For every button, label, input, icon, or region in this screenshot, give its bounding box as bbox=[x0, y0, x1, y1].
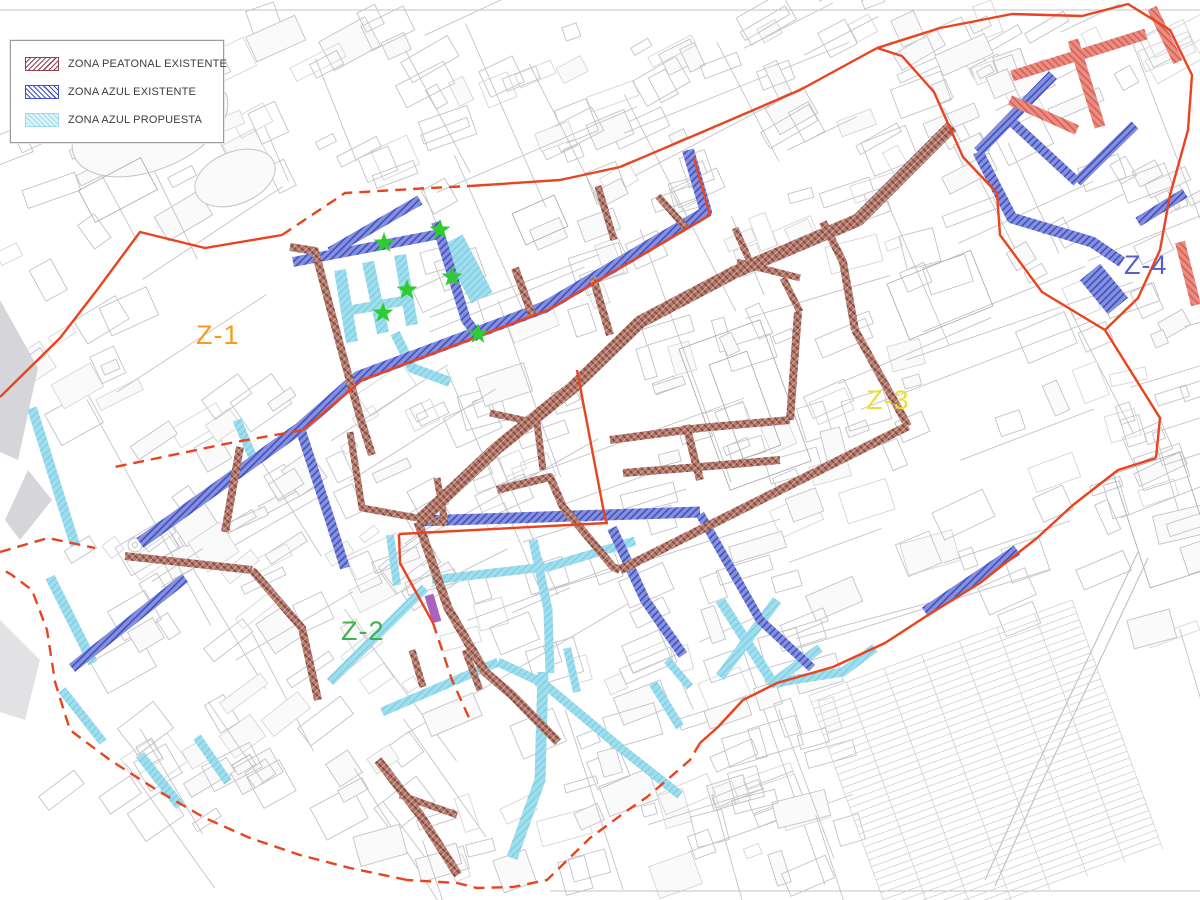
legend-label-blue-existing: ZONA AZUL EXISTENTE bbox=[68, 86, 196, 98]
blue-zone-swatch-icon bbox=[25, 85, 59, 99]
pedestrian-zone-swatch-icon bbox=[25, 57, 59, 71]
urban-zoning-plan: Z-1Z-2Z-3Z-4 ZONA PEATONAL EXISTENTE ZON… bbox=[0, 0, 1200, 900]
legend-item-pedestrian-existing: ZONA PEATONAL EXISTENTE bbox=[25, 50, 213, 78]
proposed-blue-zone-swatch-icon bbox=[25, 113, 59, 127]
zone-label-z-3: Z-3 bbox=[866, 387, 910, 414]
zone-label-z-2: Z-2 bbox=[341, 618, 385, 645]
legend-label-blue-proposed: ZONA AZUL PROPUESTA bbox=[68, 114, 202, 126]
legend: ZONA PEATONAL EXISTENTE ZONA AZUL EXISTE… bbox=[10, 40, 224, 143]
legend-label-pedestrian: ZONA PEATONAL EXISTENTE bbox=[68, 58, 227, 70]
zone-label-z-4: Z-4 bbox=[1124, 252, 1168, 279]
legend-item-blue-existing: ZONA AZUL EXISTENTE bbox=[25, 78, 213, 106]
legend-item-blue-proposed: ZONA AZUL PROPUESTA bbox=[25, 106, 213, 134]
zone-label-z-1: Z-1 bbox=[196, 322, 240, 349]
